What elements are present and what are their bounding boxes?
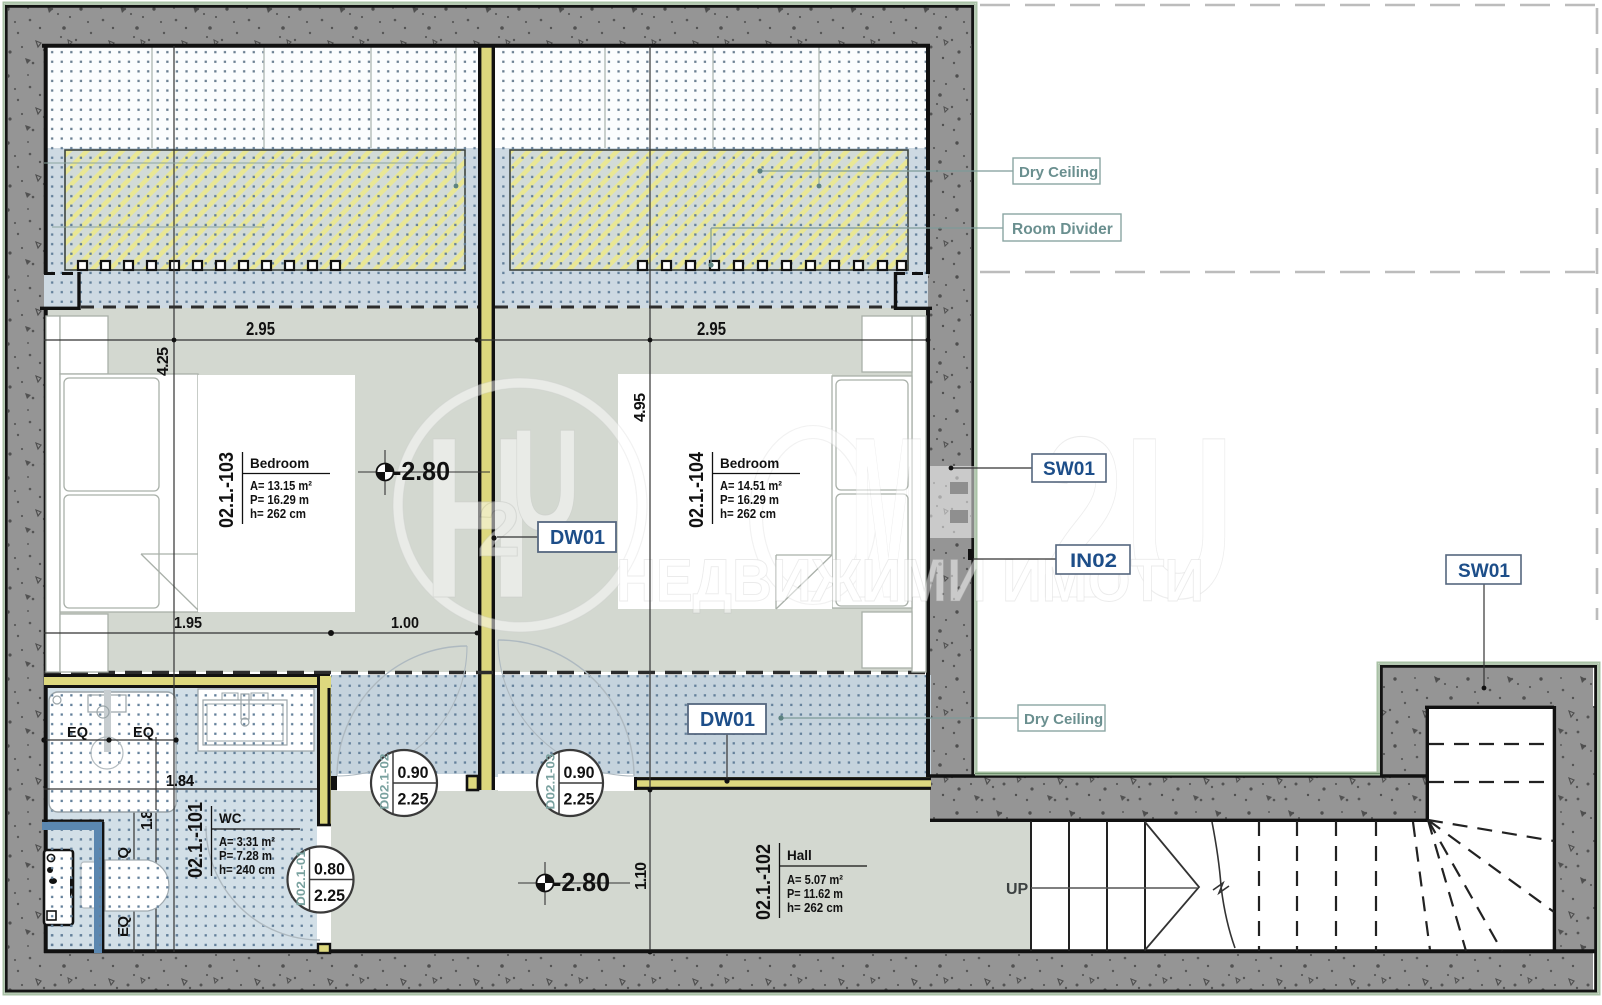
svg-text:P= 16.29 m: P= 16.29 m <box>720 493 779 507</box>
svg-text:2.25: 2.25 <box>314 886 345 905</box>
svg-text:Hall: Hall <box>787 848 812 863</box>
svg-text:A= 13.15 m²: A= 13.15 m² <box>250 479 312 493</box>
svg-text:Bedroom: Bedroom <box>250 456 309 471</box>
svg-text:0.90: 0.90 <box>564 763 595 782</box>
svg-text:Bedroom: Bedroom <box>720 456 779 471</box>
svg-text:h= 262 cm: h= 262 cm <box>720 507 776 521</box>
svg-text:02.1.-102: 02.1.-102 <box>753 844 775 920</box>
svg-text:DW01: DW01 <box>700 709 755 731</box>
svg-text:4.25: 4.25 <box>155 347 172 376</box>
svg-text:02.1.-103: 02.1.-103 <box>216 452 238 528</box>
svg-text:02.1.-101: 02.1.-101 <box>185 802 207 878</box>
svg-text:02.1.-104: 02.1.-104 <box>686 451 708 528</box>
svg-text:EQ: EQ <box>133 724 154 741</box>
svg-text:-2.80: -2.80 <box>553 867 610 897</box>
svg-text:h= 240 cm: h= 240 cm <box>219 863 275 877</box>
svg-text:EQ: EQ <box>67 724 88 741</box>
svg-text:SW01: SW01 <box>1043 459 1095 480</box>
svg-text:A= 14.51 m²: A= 14.51 m² <box>720 479 782 493</box>
svg-text:4.95: 4.95 <box>632 393 649 422</box>
svg-text:D02.1-03: D02.1-03 <box>544 753 558 809</box>
svg-text:0.80: 0.80 <box>314 860 345 879</box>
svg-text:A= 5.07 m²: A= 5.07 m² <box>787 873 843 887</box>
svg-text:h= 262 cm: h= 262 cm <box>787 901 843 915</box>
svg-text:-2.80: -2.80 <box>393 456 450 486</box>
svg-text:2.95: 2.95 <box>697 319 726 339</box>
svg-text:WC: WC <box>219 811 242 826</box>
svg-text:D02.1-02: D02.1-02 <box>378 753 392 809</box>
svg-text:P= 11.62 m: P= 11.62 m <box>787 887 843 901</box>
svg-text:IN02: IN02 <box>1070 551 1117 572</box>
svg-text:2: 2 <box>477 485 520 573</box>
svg-text:0.90: 0.90 <box>398 763 429 782</box>
svg-text:D02.1-01: D02.1-01 <box>294 850 308 906</box>
svg-text:Room Divider: Room Divider <box>1012 221 1113 238</box>
svg-text:1.84: 1.84 <box>166 773 194 790</box>
svg-text:1.00: 1.00 <box>391 615 419 632</box>
svg-text:1.10: 1.10 <box>633 862 650 890</box>
svg-text:2.25: 2.25 <box>564 790 595 809</box>
svg-text:Dry Ceiling: Dry Ceiling <box>1019 164 1098 181</box>
svg-text:Dry Ceiling: Dry Ceiling <box>1024 711 1103 728</box>
svg-text:1.95: 1.95 <box>174 615 202 632</box>
svg-text:h= 262 cm: h= 262 cm <box>250 507 306 521</box>
svg-text:UP: UP <box>1006 881 1029 898</box>
svg-text:DW01: DW01 <box>550 527 605 549</box>
svg-text:2.95: 2.95 <box>246 319 275 339</box>
svg-text:P= 16.29 m: P= 16.29 m <box>250 493 309 507</box>
svg-text:A= 3.31 m²: A= 3.31 m² <box>219 835 275 849</box>
svg-text:2.25: 2.25 <box>398 790 429 809</box>
svg-text:SW01: SW01 <box>1458 561 1510 582</box>
svg-text:P= 7.28 m: P= 7.28 m <box>219 849 272 863</box>
